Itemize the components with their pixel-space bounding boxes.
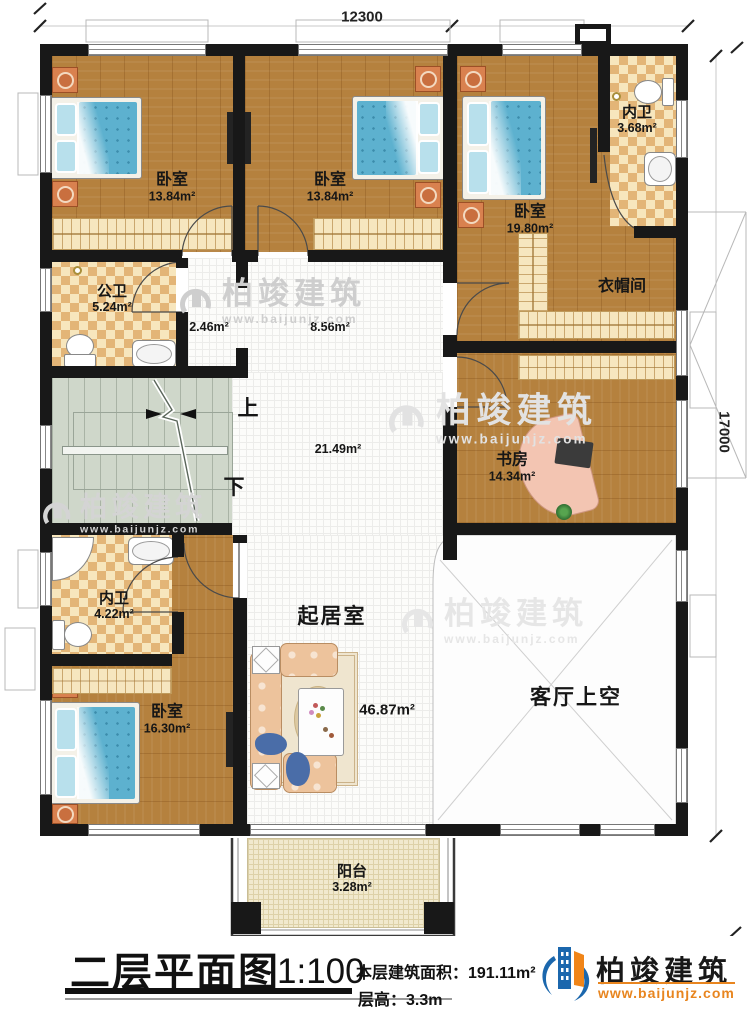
brand-logo-icon <box>538 942 594 1004</box>
person-figure <box>286 752 310 786</box>
pillows <box>467 102 489 194</box>
closet-shelf <box>518 311 675 339</box>
room-name: 卧室 <box>507 204 554 222</box>
room-area: 46.87m² <box>359 701 415 718</box>
wall <box>172 535 184 557</box>
toilet-icon <box>64 622 92 647</box>
toilet-tank <box>662 78 674 106</box>
void-diagonal <box>438 540 672 820</box>
room-name: 阳台 <box>332 863 372 880</box>
lamp-icon <box>73 266 82 275</box>
blanket <box>489 101 521 195</box>
dimension-right: 17000 <box>716 411 733 453</box>
hall-mid-label: 8.56m² <box>310 320 350 334</box>
wall <box>598 56 610 152</box>
wall <box>236 262 248 288</box>
room-area: 19.80m² <box>507 222 554 236</box>
bedroom2-label: 卧室13.84m² <box>307 172 354 205</box>
room-name: 内卫 <box>617 104 657 121</box>
public-bath-label: 公卫5.24m² <box>92 283 132 315</box>
computer-icon <box>554 438 593 469</box>
ensuite-bottom-label: 内卫4.22m² <box>94 590 134 622</box>
window <box>600 824 655 836</box>
window <box>40 425 52 469</box>
nightstand <box>52 804 78 824</box>
window <box>40 552 52 606</box>
room-area: 3.28m² <box>332 880 372 894</box>
bedroom1-label: 卧室13.84m² <box>149 172 196 205</box>
hall-large-label: 21.49m² <box>315 442 362 456</box>
plan-scale: 1:100 <box>277 952 365 992</box>
nightstand <box>52 67 78 93</box>
tv <box>245 112 251 164</box>
wall <box>233 535 247 543</box>
tv <box>590 128 597 183</box>
plant-icon <box>556 504 572 520</box>
lamp-icon <box>612 92 621 101</box>
coffee-table <box>298 688 344 756</box>
wall <box>634 226 676 238</box>
balcony-pillar <box>424 902 454 934</box>
wardrobe <box>52 668 172 694</box>
blanket <box>386 101 418 175</box>
window <box>676 550 688 602</box>
window <box>676 100 688 158</box>
room-area: 8.56m² <box>310 320 350 334</box>
nightstand <box>52 181 78 207</box>
nightstand <box>460 66 486 92</box>
room-area: 13.84m² <box>149 190 196 204</box>
void-outline <box>433 535 676 826</box>
sliding-door <box>250 824 426 836</box>
window <box>40 268 52 312</box>
ensuite-top-label: 内卫3.68m² <box>617 104 657 136</box>
wall <box>176 312 188 366</box>
wardrobe <box>313 218 443 250</box>
pillows <box>55 708 77 798</box>
window <box>502 44 582 56</box>
wall <box>40 654 172 666</box>
wall <box>443 335 457 357</box>
room-area: 16.30m² <box>144 722 191 736</box>
balcony-label: 阳台3.28m² <box>332 863 372 895</box>
brand-url: www.baijunjz.com <box>598 982 735 1001</box>
sofa <box>280 643 338 677</box>
bedroom4-label: 卧室16.30m² <box>144 704 191 737</box>
window <box>40 700 52 795</box>
window <box>500 824 580 836</box>
stairs-down-label: 下 <box>224 476 247 500</box>
window <box>676 748 688 803</box>
living-area-label: 46.87m² <box>359 701 415 718</box>
wall <box>236 348 248 378</box>
window <box>88 824 200 836</box>
wall <box>308 250 443 262</box>
void-label: 客厅上空 <box>530 686 622 710</box>
hall-floor <box>188 258 443 372</box>
wall <box>443 56 457 283</box>
nightstand <box>415 66 441 92</box>
closet-shelf <box>518 355 675 380</box>
window <box>676 400 688 488</box>
room-area: 3.68m² <box>617 121 657 135</box>
room-area: 21.49m² <box>315 442 362 456</box>
sink-icon <box>132 340 176 368</box>
dimension-top: 12300 <box>341 9 383 26</box>
window <box>298 44 448 56</box>
room-area: 5.24m² <box>92 300 132 314</box>
room-name: 客厅上空 <box>530 686 622 710</box>
chimney <box>575 24 611 46</box>
nightstand <box>415 182 441 208</box>
bed <box>462 96 546 200</box>
room-area: 2.46m² <box>189 320 229 334</box>
bed <box>352 96 445 180</box>
wardrobe <box>52 218 232 250</box>
room-name: 卧室 <box>144 704 191 722</box>
room-name: 卧室 <box>307 172 354 190</box>
stairs-up-label: 上 <box>238 397 261 421</box>
room-area: 14.34m² <box>489 470 536 484</box>
floor-area-text: 本层建筑面积：191.11m² <box>356 959 536 983</box>
stair-direction: 下 <box>224 476 247 500</box>
title-block: 二层平面图 1:100 本层建筑面积：191.11m² 层高：3.3m 柏竣建筑… <box>0 936 750 1017</box>
person-figure <box>255 733 287 755</box>
side-table <box>252 763 280 789</box>
blanket <box>77 102 109 174</box>
room-area: 4.22m² <box>94 607 134 621</box>
sink-icon <box>644 152 676 186</box>
pillows <box>418 102 440 174</box>
wall <box>40 366 236 378</box>
wall <box>176 258 188 268</box>
closet-label: 衣帽间 <box>598 278 646 296</box>
nightstand <box>458 202 484 228</box>
room-name: 起居室 <box>298 605 367 629</box>
wall <box>52 250 182 262</box>
room-name: 卧室 <box>149 172 196 190</box>
wall <box>233 598 247 824</box>
stair-handrail <box>62 446 228 455</box>
room-name: 内卫 <box>94 590 134 607</box>
hall-small-label: 2.46m² <box>189 320 229 334</box>
room-name: 书房 <box>489 452 536 470</box>
stair-direction: 上 <box>238 397 261 421</box>
watermark-url: www.baijunjz.com <box>444 632 588 646</box>
window <box>676 310 688 376</box>
balcony-pillar <box>231 902 261 934</box>
wall <box>232 250 258 262</box>
floor-height-text: 层高：3.3m <box>358 986 442 1010</box>
pillows <box>55 103 77 173</box>
sink-icon <box>128 537 174 565</box>
bedroom3-label: 卧室19.80m² <box>507 204 554 237</box>
living-label: 起居室 <box>298 605 367 629</box>
bed <box>50 97 142 179</box>
floor-plan-canvas: 卧室13.84m² 卧室13.84m² 卧室19.80m² 内卫3.68m² 衣… <box>0 0 750 1017</box>
wall <box>443 407 457 560</box>
tv <box>226 712 233 767</box>
watermark-name: 柏竣建筑 <box>444 598 588 629</box>
side-table <box>252 646 280 674</box>
room-area: 13.84m² <box>307 190 354 204</box>
room-name: 公卫 <box>92 283 132 300</box>
wall <box>457 341 676 353</box>
room-name: 衣帽间 <box>598 278 646 296</box>
window <box>88 44 206 56</box>
wall <box>40 523 232 535</box>
wall <box>443 523 688 535</box>
wall <box>233 56 245 250</box>
bed <box>50 702 140 804</box>
toilet-icon <box>634 80 662 104</box>
blanket <box>77 707 109 799</box>
window <box>40 95 52 173</box>
wall <box>172 612 184 654</box>
study-label: 书房14.34m² <box>489 452 536 485</box>
